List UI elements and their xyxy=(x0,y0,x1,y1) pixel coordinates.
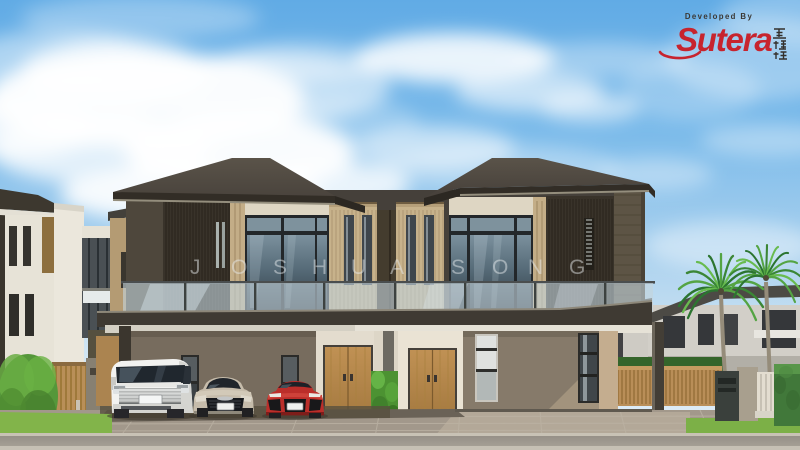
svg-text:J: J xyxy=(190,256,201,279)
svg-text:A: A xyxy=(390,256,404,279)
svg-text:Sutera: Sutera xyxy=(676,21,772,58)
svg-text:U: U xyxy=(351,256,366,279)
svg-text:N: N xyxy=(528,256,543,279)
svg-text:Developed By: Developed By xyxy=(685,12,753,21)
svg-text:H: H xyxy=(312,256,327,279)
svg-text:O: O xyxy=(231,256,247,279)
svg-text:O: O xyxy=(492,256,508,279)
svg-text:S: S xyxy=(273,256,287,279)
svg-text:S: S xyxy=(451,256,465,279)
svg-text:G: G xyxy=(569,256,585,279)
